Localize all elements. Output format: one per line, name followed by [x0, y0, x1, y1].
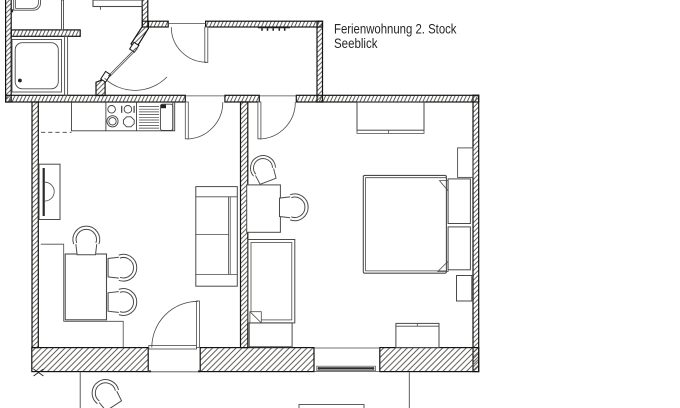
svg-text:Ferienwohnung 2. Stock: Ferienwohnung 2. Stock: [334, 21, 457, 37]
svg-text:Seeblick: Seeblick: [334, 36, 378, 52]
